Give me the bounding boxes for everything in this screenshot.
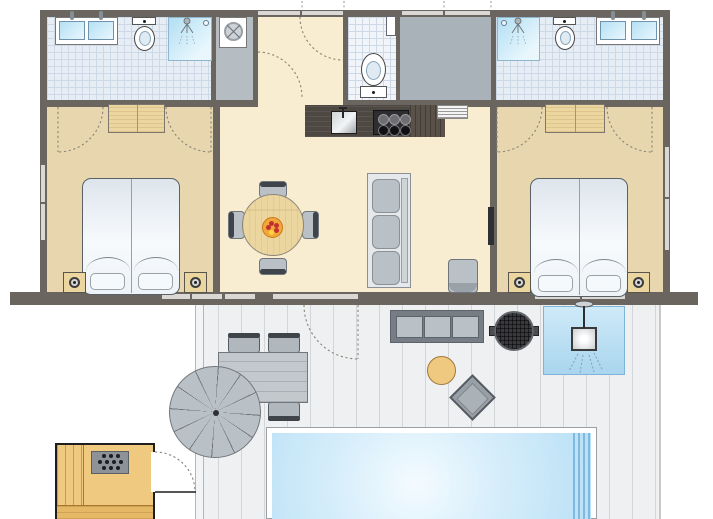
outdoor-sofa-cushion [396, 316, 423, 338]
pillow [138, 273, 173, 290]
bedside-lamp [633, 277, 644, 288]
pillow [586, 275, 621, 292]
roof-overhang-ticks [302, 1, 491, 9]
bed-divider [579, 179, 580, 295]
wall-top [40, 10, 670, 17]
wall-wc-storage [396, 17, 400, 100]
shower-drain [203, 20, 209, 26]
kitchen-sink [331, 111, 357, 134]
sauna-stone [102, 454, 106, 458]
double-bed [530, 178, 628, 297]
blanket-edge [134, 257, 178, 271]
blanket-edge [582, 259, 626, 273]
chair-back [260, 182, 286, 187]
fruit [274, 228, 279, 233]
sliding-door-deck [273, 294, 358, 299]
armchair [448, 259, 478, 293]
sauna-bench [57, 505, 153, 519]
outdoor-chair-back [268, 333, 300, 338]
bedside-lamp [514, 277, 525, 288]
wall-living-bedroomR [490, 107, 497, 292]
toilet-bowl [560, 31, 571, 45]
toilet-button [563, 20, 566, 23]
wall-hall-wc [343, 17, 348, 107]
window-right [665, 199, 669, 250]
pool-step-line [573, 433, 575, 519]
dining-chair [259, 258, 287, 275]
pool-step-line [578, 433, 580, 519]
fruit [274, 223, 279, 228]
washing-machine-drum [224, 22, 243, 41]
sofa-cushion [372, 179, 400, 213]
wooden-stool [427, 356, 456, 385]
window-top [258, 11, 300, 15]
toilet-bowl [366, 61, 381, 80]
bedside-lamp [69, 277, 80, 288]
parasol-pole [213, 410, 219, 416]
fruit-bowl [262, 217, 283, 238]
outdoor-sofa [390, 310, 484, 343]
hob-burner [400, 114, 411, 125]
entry-door-panel [302, 11, 343, 15]
dining-chair [302, 211, 319, 239]
washbasin [88, 21, 114, 40]
pillow [90, 273, 125, 290]
bedside-lamp [190, 277, 201, 288]
sauna-stove [91, 451, 129, 474]
fruit [269, 230, 274, 235]
nightstand [63, 272, 86, 293]
blanket-edge [86, 257, 130, 271]
sauna-stone [109, 454, 113, 458]
outdoor-shower-head [571, 327, 597, 351]
sauna-stone [116, 454, 120, 458]
chair-back [229, 212, 234, 238]
swimming-pool [272, 433, 591, 519]
room-hallway [258, 17, 343, 107]
double-bed [82, 178, 180, 295]
sofa-backrest [401, 178, 408, 283]
toilet-button [143, 20, 146, 23]
hob [373, 110, 409, 135]
chair-back [260, 269, 286, 274]
hob-burner [389, 114, 400, 125]
window-top [402, 11, 443, 15]
sauna-stone [112, 460, 116, 464]
washbasin [600, 21, 626, 40]
outdoor-chair-back [228, 333, 260, 338]
pool-steps [571, 433, 593, 519]
room-storage [400, 17, 491, 100]
bed-divider [131, 179, 132, 293]
wall-left [40, 10, 47, 292]
pillow [538, 275, 573, 292]
window-right [665, 147, 669, 197]
shower-drain [501, 20, 507, 26]
sauna-stone [105, 460, 109, 464]
window-top [445, 11, 490, 15]
outdoor-chair-back [268, 416, 300, 421]
armchair-back [449, 283, 477, 292]
sauna-stone [116, 466, 120, 470]
toilet-button [372, 91, 375, 94]
wardrobe-divider [137, 105, 138, 132]
window-bottom [225, 294, 255, 299]
outdoor-chair [268, 336, 300, 353]
chair-back [313, 212, 318, 238]
blanket-edge [534, 259, 578, 273]
floor-plan [0, 0, 713, 519]
sauna-stone [109, 466, 113, 470]
window-bottom [192, 294, 222, 299]
outdoor-sofa-cushion [424, 316, 451, 338]
hob-burner [400, 125, 411, 136]
hob-burner [378, 125, 389, 136]
sofa-cushion [372, 215, 400, 249]
wardrobe-divider [575, 105, 576, 132]
vent-grille [437, 105, 468, 119]
washbasin [631, 21, 657, 40]
sauna [55, 443, 155, 519]
hob-burner [378, 114, 389, 125]
sauna-stone [98, 460, 102, 464]
pool-step-line [588, 433, 590, 519]
sauna-stone [119, 460, 123, 464]
toilet-bowl [139, 31, 151, 46]
sauna-stone [102, 466, 106, 470]
outdoor-sofa-cushion [452, 316, 479, 338]
wall-storage-bath [491, 17, 496, 100]
flat-screen-tv [488, 207, 494, 245]
sofa-cushion [372, 251, 400, 285]
wardrobe [545, 104, 605, 133]
washbasin [59, 21, 85, 40]
barbecue-grill [494, 311, 534, 351]
wardrobe [108, 104, 165, 133]
wall-bedroomL-living [213, 107, 220, 292]
hob-burner [389, 125, 400, 136]
window-left [41, 204, 45, 240]
nightstand [627, 272, 650, 293]
nightstand [184, 272, 207, 293]
pool-step-line [583, 433, 585, 519]
window-left [41, 165, 45, 202]
wc-window [386, 16, 396, 36]
parasol [169, 366, 261, 458]
wall-laundry-hall [253, 17, 258, 100]
nightstand [508, 272, 531, 293]
sofa [367, 173, 411, 288]
outdoor-chair [228, 336, 260, 353]
sauna-door-opening [151, 452, 157, 492]
